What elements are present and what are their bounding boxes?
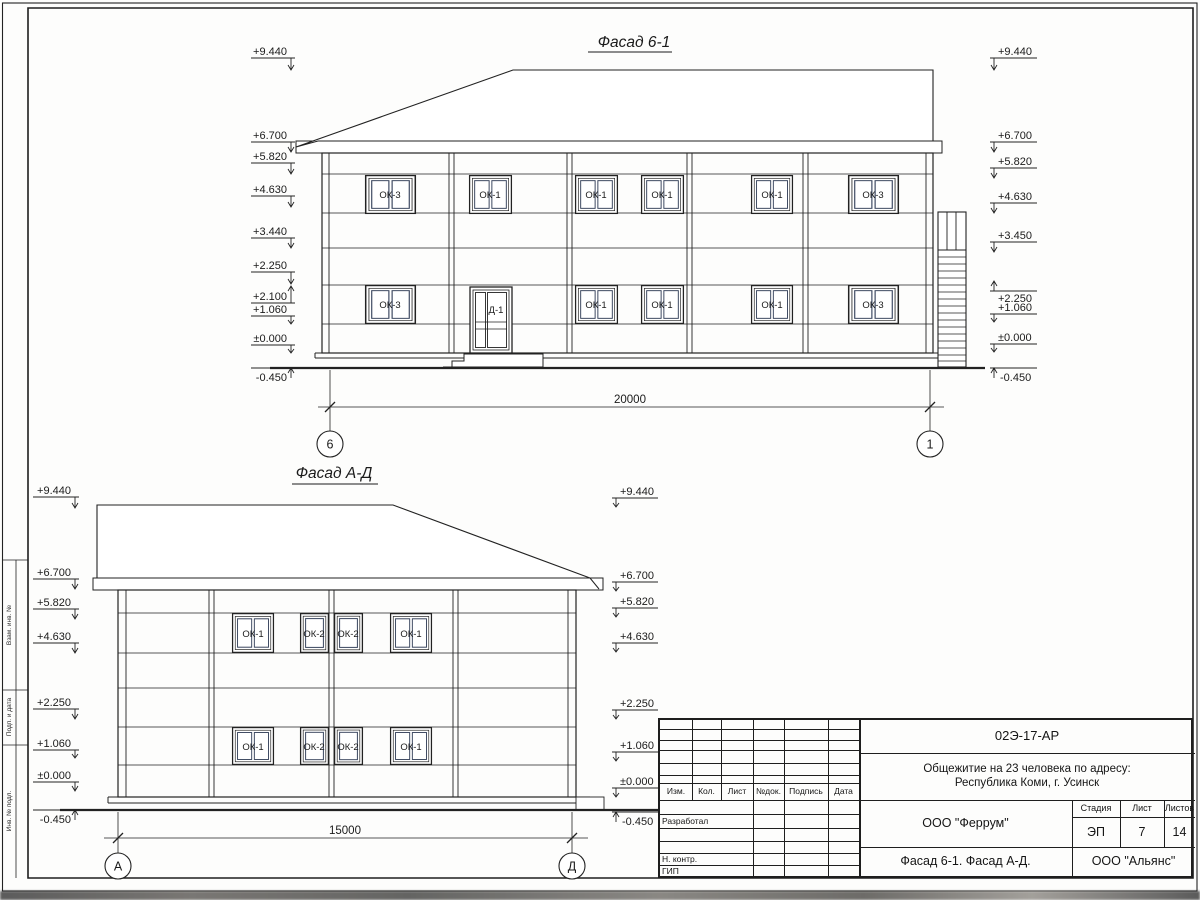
window-label: ОК-1	[585, 190, 606, 201]
mark-value: +5.820	[998, 156, 1032, 168]
elevation-mark: +5.820	[33, 597, 79, 619]
elevation-mark: -0.450	[612, 812, 658, 828]
drawing-sheet: Фасад 6-1 ОК-3 ОК-1 ОК-1 ОК-1 ОК-1 ОК-3	[0, 0, 1200, 900]
elevation-mark: +9.440	[990, 46, 1037, 70]
mark-value: +9.440	[620, 486, 654, 498]
pilaster-joints	[329, 153, 926, 353]
tb-col-data: Дата	[828, 783, 859, 800]
tb-sheets-label: Листов	[1164, 800, 1195, 817]
ladder-frame	[938, 212, 966, 367]
mark-arrow	[33, 709, 79, 719]
roof	[296, 70, 933, 147]
mark-arrow	[251, 272, 295, 284]
mark-value: +4.630	[620, 631, 654, 643]
mark-value: +3.450	[998, 230, 1032, 242]
window-label: ОК-1	[242, 629, 263, 640]
tb-line	[660, 828, 859, 829]
window-label: ОК-1	[761, 300, 782, 311]
window-label: ОК-1	[400, 629, 421, 640]
tb-row-nkontr: Н. контр.	[660, 853, 753, 865]
mark-value: +5.820	[620, 596, 654, 608]
tb-col-ndok: №док.	[753, 783, 784, 800]
window-label: ОК-3	[862, 300, 883, 311]
mark-value: ±0.000	[620, 776, 654, 788]
window-label: ОК-2	[303, 629, 324, 640]
scan-artifact	[0, 891, 1200, 900]
elevation-mark: +4.630	[251, 184, 295, 207]
tb-line	[660, 775, 859, 776]
elevation-mark: +1.060	[612, 740, 658, 761]
mark-arrow	[251, 196, 295, 207]
mark-value: +9.440	[998, 46, 1032, 58]
axis-label: Д	[568, 860, 577, 874]
facade-1-title: Фасад 6-1	[598, 34, 671, 51]
window-label: ОК-1	[651, 190, 672, 201]
mark-value: +2.250	[253, 260, 287, 272]
mark-arrow	[33, 497, 79, 508]
facade-6-1: Фасад 6-1 ОК-3 ОК-1 ОК-1 ОК-1 ОК-1 ОК-3	[251, 34, 1037, 457]
elevation-mark: +6.700	[612, 570, 658, 591]
mark-value: +3.440	[253, 226, 287, 238]
tb-line	[660, 740, 859, 741]
facade-2-dimension: 15000 А Д	[104, 812, 588, 879]
window-row-lower: ОК-1 ОК-2 ОК-2 ОК-1	[233, 728, 432, 765]
facade-2-marks-right: +9.440 +6.700 +5.820 +4.630 +2.250 +1.06…	[612, 486, 658, 828]
mark-value: +6.700	[998, 130, 1032, 142]
side-step	[576, 797, 604, 810]
window-label: ОК-1	[651, 300, 672, 311]
mark-arrow	[990, 314, 1037, 322]
tb-project-line1: Общежитие на 23 человека по адресу:	[923, 763, 1130, 776]
mark-value: +1.060	[620, 740, 654, 752]
facade-1-marks-right: +9.440 +6.700 +5.820 +4.630 +3.450 +2.25…	[990, 46, 1037, 384]
mark-value: +5.820	[37, 597, 71, 609]
tb-company2: ООО "Альянс"	[1072, 847, 1195, 876]
eaves-band	[93, 578, 603, 590]
mark-value: ±0.000	[37, 770, 71, 782]
facade-1-marks-left: +9.440 +6.700 +5.820 +4.630 +3.440 +2.25…	[251, 46, 295, 384]
elevation-mark: ±0.000	[990, 332, 1037, 352]
elevation-mark: +6.700	[251, 130, 295, 152]
elevation-mark: +1.060	[990, 302, 1037, 322]
window-row-upper: ОК-1 ОК-2 ОК-2 ОК-1	[233, 614, 432, 653]
elevation-mark: -0.450	[990, 368, 1037, 384]
elevation-mark: +2.250	[251, 260, 295, 284]
tb-row-razrabotal: Разработал	[660, 814, 753, 828]
tb-company: ООО "Феррум"	[859, 800, 1072, 847]
window-label: ОК-1	[761, 190, 782, 201]
tb-col-kol: Кол.	[692, 783, 721, 800]
porch-steps	[443, 354, 543, 367]
plinth	[108, 797, 590, 803]
mark-value: -0.450	[40, 814, 71, 826]
mark-value: ±0.000	[998, 332, 1032, 344]
mark-arrow	[612, 710, 658, 719]
mark-value: +1.060	[37, 738, 71, 750]
elevation-mark: +6.700	[33, 567, 79, 589]
mark-arrow	[33, 609, 79, 619]
elevation-mark: +5.820	[990, 156, 1037, 178]
eaves-band	[296, 141, 942, 153]
elevation-mark: +1.060	[251, 304, 295, 324]
facade-a-d: Фасад А-Д ОК-1 ОК-2 ОК-2 ОК-1 ОК-1 ОК-	[33, 465, 660, 879]
tb-sheet-value: 7	[1120, 817, 1164, 847]
frame-stamp-inv: Инв. № подл.	[3, 751, 15, 871]
facade-1-dimension: 20000 6 1	[317, 370, 944, 457]
elevation-mark: +3.440	[251, 226, 295, 248]
elevation-mark: +9.440	[33, 485, 79, 508]
mark-value: +9.440	[253, 46, 287, 58]
window-label: ОК-2	[337, 742, 358, 753]
tb-line	[660, 763, 859, 764]
mark-value: -0.450	[256, 372, 287, 384]
facade-2-marks-left: +9.440 +6.700 +5.820 +4.630 +2.250 +1.06…	[33, 485, 79, 826]
mark-value: +2.250	[620, 698, 654, 710]
axis-label: 6	[327, 438, 334, 452]
mark-value: +5.820	[253, 151, 287, 163]
elevation-mark: -0.450	[251, 368, 295, 384]
mark-value: ±0.000	[253, 333, 287, 345]
window-label: ОК-1	[242, 742, 263, 753]
window-label: ОК-3	[862, 190, 883, 201]
axis-label: А	[114, 860, 123, 874]
entrance-door: Д-1	[443, 287, 543, 367]
mark-arrow	[251, 163, 295, 174]
tb-doc-number: 02Э-17-АР	[859, 720, 1195, 753]
mark-value: +6.700	[253, 130, 287, 142]
tb-sheet-label: Лист	[1120, 800, 1164, 817]
mark-arrow	[990, 58, 1037, 70]
mark-arrow	[33, 750, 79, 758]
elevation-mark: +4.630	[990, 191, 1037, 213]
mark-arrow	[251, 316, 295, 324]
title-block: Изм. Кол. Лист №док. Подпись Дата Разраб…	[658, 718, 1193, 878]
mark-value: +9.440	[37, 485, 71, 497]
mark-value: +6.700	[620, 570, 654, 582]
elevation-mark: +4.630	[612, 631, 658, 652]
door-frame	[470, 287, 512, 353]
tb-col-list: Лист	[721, 783, 753, 800]
window-label: ОК-1	[585, 300, 606, 311]
tb-stage-label: Стадия	[1072, 800, 1120, 817]
window-label: ОК-3	[379, 300, 400, 311]
mark-arrow	[612, 752, 658, 761]
mark-arrow	[612, 498, 658, 507]
elevation-mark: ±0.000	[33, 770, 79, 791]
mark-arrow	[990, 242, 1037, 252]
mark-value: +1.060	[253, 304, 287, 316]
mark-arrow	[612, 608, 658, 617]
dimension-value: 20000	[614, 394, 646, 406]
mark-arrow	[990, 344, 1037, 352]
fire-ladder	[938, 212, 966, 367]
roof	[97, 505, 590, 578]
dimension-value: 15000	[329, 825, 361, 837]
tb-line	[660, 729, 859, 730]
mark-value: +6.700	[37, 567, 71, 579]
elevation-mark: ±0.000	[612, 776, 658, 797]
mark-arrow	[33, 643, 79, 653]
tb-col-izm: Изм.	[660, 783, 692, 800]
elevation-mark: +5.820	[612, 596, 658, 617]
mark-value: +4.630	[37, 631, 71, 643]
mark-value: -0.450	[622, 816, 653, 828]
tb-project: Общежитие на 23 человека по адресу: Респ…	[859, 753, 1195, 800]
mark-value: +2.250	[37, 697, 71, 709]
mark-arrow	[33, 579, 79, 589]
mark-value: +1.060	[998, 302, 1032, 314]
axis-label: 1	[927, 438, 934, 452]
elevation-mark: +4.630	[33, 631, 79, 653]
elevation-mark: -0.450	[33, 810, 79, 826]
mark-arrow	[612, 788, 658, 797]
tb-content: Фасад 6-1. Фасад А-Д.	[859, 847, 1072, 876]
mark-arrow	[33, 782, 79, 791]
elevation-mark: +2.250	[612, 698, 658, 719]
mark-value: +4.630	[998, 191, 1032, 203]
window-label: ОК-1	[400, 742, 421, 753]
tb-project-line2: Республика Коми, г. Усинск	[955, 777, 1099, 790]
elevation-mark: +6.700	[990, 130, 1037, 152]
mark-arrow	[251, 345, 295, 353]
mark-arrow	[990, 203, 1037, 213]
tb-line	[660, 800, 859, 801]
elevation-mark: ±0.000	[251, 333, 295, 353]
mark-arrow	[251, 238, 295, 248]
mark-arrow	[990, 168, 1037, 178]
plinth	[315, 353, 940, 358]
tb-stage-value: ЭП	[1072, 817, 1120, 847]
elevation-mark: +1.060	[33, 738, 79, 758]
mark-value: -0.450	[1000, 372, 1031, 384]
elevation-mark: +9.440	[612, 486, 658, 507]
elevation-mark: +2.100	[251, 286, 295, 303]
window-label: ОК-3	[379, 190, 400, 201]
elevation-mark: +2.250	[33, 697, 79, 719]
mark-arrow	[251, 58, 295, 70]
facade-2-title: Фасад А-Д	[296, 465, 373, 482]
tb-line	[660, 841, 859, 842]
door-label: Д-1	[489, 305, 504, 316]
mark-arrow	[990, 142, 1037, 152]
tb-row-gip: ГИП	[660, 865, 753, 877]
window-row-lower: ОК-3 ОК-1 ОК-1 ОК-1 ОК-3	[366, 286, 899, 324]
window-row-upper: ОК-3 ОК-1 ОК-1 ОК-1 ОК-1 ОК-3	[366, 176, 899, 214]
elevation-mark: +5.820	[251, 151, 295, 174]
tb-sheets-value: 14	[1164, 817, 1195, 847]
mark-value: +4.630	[253, 184, 287, 196]
mark-arrow	[990, 281, 1037, 291]
window-label: ОК-1	[479, 190, 500, 201]
window-label: ОК-2	[337, 629, 358, 640]
window-label: ОК-2	[303, 742, 324, 753]
mark-value: +2.100	[253, 291, 287, 303]
mark-arrow	[612, 643, 658, 652]
tb-line	[660, 750, 859, 751]
mark-arrow	[612, 582, 658, 591]
elevation-mark: +9.440	[251, 46, 295, 70]
elevation-mark: +3.450	[990, 230, 1037, 252]
tb-col-podpis: Подпись	[784, 783, 828, 800]
